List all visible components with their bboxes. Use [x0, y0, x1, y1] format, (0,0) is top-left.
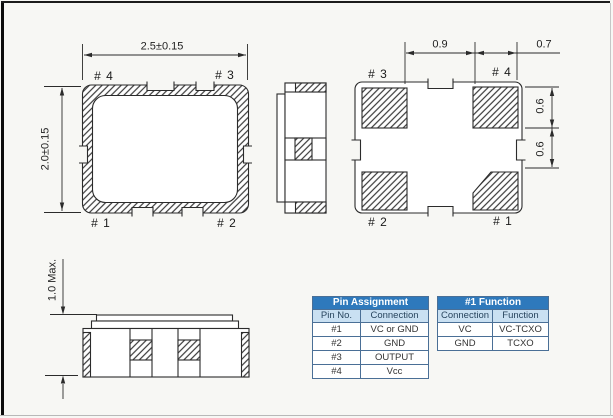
top-view	[79, 82, 252, 217]
lid-top	[97, 315, 233, 321]
pin-no-cell: #1	[313, 323, 361, 337]
function-cell: VC-TCXO	[493, 323, 549, 337]
pin-no-cell: #3	[313, 351, 361, 365]
terminal-hatch	[130, 340, 152, 360]
right-notch	[244, 146, 253, 163]
right-notch	[517, 140, 526, 160]
top-notch	[147, 82, 174, 91]
bottom-view-pin3-label: # 3	[368, 68, 388, 80]
table-row: #3 OUTPUT	[313, 351, 429, 365]
bottom-view-pad-height-upper-dim: 0.6	[536, 98, 547, 113]
table-row: VC VC-TCXO	[438, 323, 549, 337]
connection-header: Connection	[438, 310, 493, 323]
terminal-hatch	[178, 340, 200, 360]
right-castellation	[242, 333, 250, 378]
pin-no-header: Pin No.	[313, 310, 361, 323]
bottom-notch	[428, 207, 453, 217]
bottom-view-pin2-label: # 2	[368, 216, 388, 228]
pin-no-cell: #4	[313, 365, 361, 379]
table-row: #2 GND	[313, 337, 429, 351]
top-view-pin4-label: # 4	[94, 70, 114, 82]
pad-pin2	[362, 172, 407, 210]
mid-band-hatch	[295, 138, 312, 160]
lid-base	[92, 321, 239, 329]
top-view-cavity	[93, 96, 238, 203]
lid-seam	[277, 94, 285, 202]
left-notch	[79, 146, 88, 163]
table-row: #4 Vcc	[313, 365, 429, 379]
function-cell: TCXO	[493, 337, 549, 351]
package-outline-drawing	[0, 0, 613, 418]
connection-cell: OUTPUT	[361, 351, 429, 365]
top-view-width-dim: 2.5±0.15	[141, 42, 184, 53]
side-view-height	[83, 315, 249, 377]
pin1-function-title: #1 Function	[438, 297, 549, 310]
bottom-view-pad-height-lower-dim: 0.6	[536, 141, 547, 156]
datasheet-page: 2.5±0.15 2.0±0.15 # 4 # 3 # 1 # 2 0.9 0.…	[0, 0, 613, 418]
bottom-view-pin4-label: # 4	[492, 66, 512, 78]
left-castellation	[83, 333, 91, 378]
table-title-row: #1 Function	[438, 297, 549, 310]
pad-pin3	[362, 88, 407, 128]
connection-cell: VC	[438, 323, 493, 337]
connection-header: Connection	[361, 310, 429, 323]
top-view-pin3-label: # 3	[215, 69, 235, 81]
table-row: #1 VC or GND	[313, 323, 429, 337]
table-header-row: Pin No. Connection	[313, 310, 429, 323]
table-row: GND TCXO	[438, 337, 549, 351]
bottom-view-pad-width-dim: 0.7	[536, 40, 551, 51]
top-notch	[428, 79, 453, 89]
bottom-notch	[132, 208, 153, 217]
pin-assignment-table: Pin Assignment Pin No. Connection #1 VC …	[312, 296, 429, 379]
connection-cell: GND	[438, 337, 493, 351]
pin-assignment-title: Pin Assignment	[313, 297, 429, 310]
package-side-view-small	[277, 83, 326, 213]
side-view-height-dim: 1.0 Max.	[48, 259, 59, 301]
top-view-height-dim: 2.0±0.15	[41, 128, 52, 171]
connection-cell: Vcc	[361, 365, 429, 379]
pin1-function-table: #1 Function Connection Function VC VC-TC…	[437, 296, 549, 351]
bottom-view-pitch-dim: 0.9	[432, 40, 447, 51]
table-title-row: Pin Assignment	[313, 297, 429, 310]
pin-no-cell: #2	[313, 337, 361, 351]
body	[83, 329, 249, 378]
function-header: Function	[493, 310, 549, 323]
bottom-view-pin1-label: # 1	[493, 215, 513, 227]
table-header-row: Connection Function	[438, 310, 549, 323]
top-notch	[196, 82, 214, 91]
bottom-view	[352, 79, 526, 217]
connection-cell: GND	[361, 337, 429, 351]
connection-cell: VC or GND	[361, 323, 429, 337]
bottom-notch	[182, 208, 203, 217]
top-view-pin1-label: # 1	[91, 217, 111, 229]
pad-pin4	[473, 87, 518, 128]
left-notch	[352, 140, 361, 160]
top-cap-hatch	[296, 83, 327, 92]
bottom-cap-hatch	[296, 202, 327, 213]
top-view-pin2-label: # 2	[217, 217, 237, 229]
